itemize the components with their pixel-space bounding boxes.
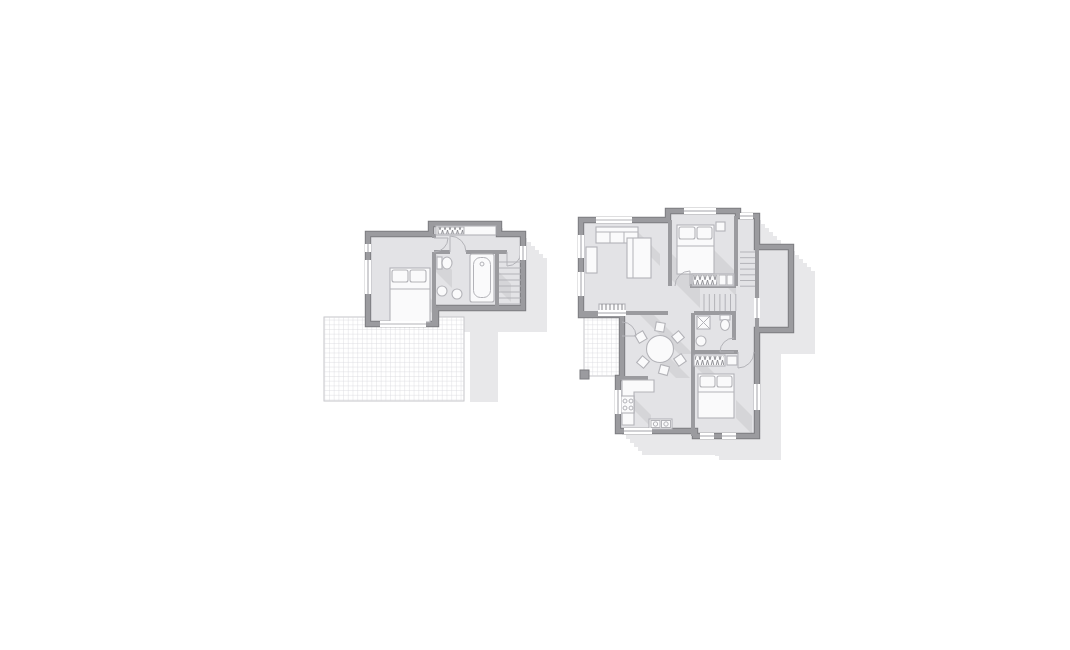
side-table: [586, 247, 597, 273]
nightstand: [716, 222, 725, 231]
long-table: [627, 238, 651, 278]
bathtub: [470, 254, 494, 302]
wardrobe: [694, 355, 725, 366]
wardrobe: [436, 226, 496, 235]
bedroom-south: [694, 355, 737, 418]
floor-plan-canvas: [0, 0, 1070, 650]
double-bed: [390, 268, 430, 322]
kitchen-sink: [649, 419, 672, 429]
radiator: [599, 304, 625, 311]
dining-table: [647, 336, 674, 363]
shower: [697, 316, 710, 329]
stove: [621, 396, 634, 413]
ground-floor-plan: [578, 208, 815, 460]
washbasin: [437, 286, 447, 296]
washbasin: [696, 336, 706, 346]
patio: [580, 317, 622, 379]
toilet: [720, 315, 730, 331]
double-bed: [677, 225, 714, 274]
chair: [658, 364, 669, 375]
toilet: [437, 257, 452, 269]
dresser: [727, 356, 737, 365]
wardrobe: [692, 274, 734, 286]
floor-plan-image: [0, 0, 1070, 650]
roof-terrace: [324, 317, 464, 401]
washbasin: [452, 289, 462, 299]
chair: [655, 322, 665, 332]
pillar: [580, 370, 589, 379]
upper-floor-plan: [324, 224, 547, 402]
double-bed: [698, 374, 734, 418]
